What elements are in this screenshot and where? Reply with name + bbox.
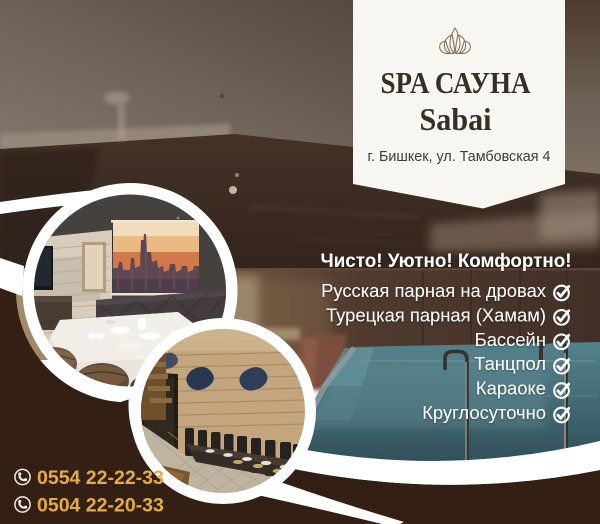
svg-text:Sabai: Sabai [420, 101, 492, 137]
svg-text:Турецкая парная (Хамам): Турецкая парная (Хамам) [326, 304, 546, 325]
svg-text:0504 22-20-33: 0504 22-20-33 [37, 495, 164, 517]
svg-text:0554 22-22-33: 0554 22-22-33 [37, 467, 164, 489]
svg-text:Круглосуточно: Круглосуточно [422, 402, 546, 423]
svg-text:Караоке: Караоке [476, 378, 546, 399]
svg-text:Чисто! Уютно! Комфортно!: Чисто! Уютно! Комфортно! [321, 251, 572, 272]
svg-text:SPA САУНА: SPA САУНА [381, 65, 532, 100]
svg-text:Русская парная на дровах: Русская парная на дровах [321, 280, 546, 301]
svg-text:Бассейн: Бассейн [475, 329, 546, 350]
svg-text:Танцпол: Танцпол [474, 353, 546, 374]
svg-text:г. Бишкек, ул. Тамбовская 4: г. Бишкек, ул. Тамбовская 4 [368, 148, 551, 165]
